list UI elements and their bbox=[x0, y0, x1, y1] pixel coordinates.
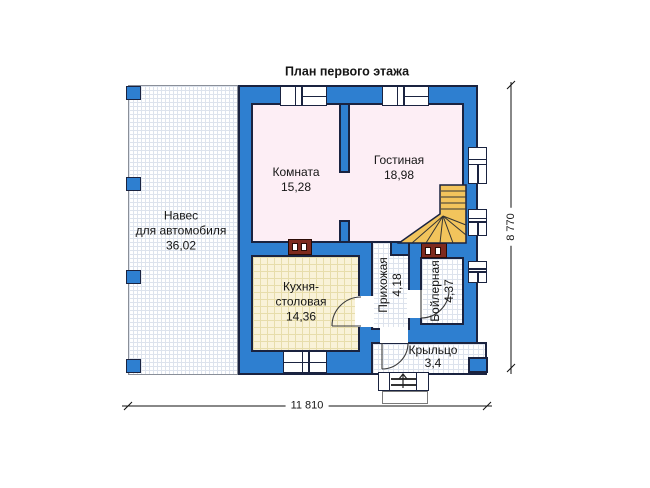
dimension-bottom: 11 810 bbox=[286, 400, 329, 413]
window-symbol bbox=[468, 261, 487, 283]
carport-post bbox=[126, 359, 141, 373]
partition-wall-stub bbox=[339, 220, 350, 243]
label-gostinaya: Гостиная 18,98 bbox=[374, 153, 424, 183]
label-carport: Навес для автомобиля 36,02 bbox=[136, 209, 227, 254]
window-symbol bbox=[382, 86, 429, 106]
carport-post bbox=[126, 177, 141, 191]
entry-steps-stringer bbox=[416, 372, 429, 391]
area-komnata: 15,28 bbox=[273, 180, 320, 195]
chimney-flue bbox=[421, 243, 447, 258]
dimension-right: 8 770 bbox=[504, 208, 518, 246]
area-gostinaya: 18,98 bbox=[374, 168, 424, 183]
label-hallway: Прихожая 4,18 bbox=[376, 257, 404, 313]
window-symbol bbox=[468, 147, 487, 184]
page-title: План первого этажа bbox=[285, 65, 409, 80]
label-porch: Крыльцо 3,4 bbox=[409, 344, 458, 370]
window-symbol bbox=[280, 86, 327, 106]
partition-wall bbox=[339, 103, 350, 173]
label-kitchen: Кухня- столовая 14,36 bbox=[276, 280, 327, 325]
area-kitchen: 14,36 bbox=[276, 310, 327, 325]
floor-plan: План первого этажа Навес для автомобиля … bbox=[0, 0, 650, 488]
area-hallway: 4,18 bbox=[390, 257, 404, 313]
label-boiler: Бойлерная 4,37 bbox=[428, 260, 456, 321]
area-porch: 3,4 bbox=[409, 357, 458, 370]
window-symbol bbox=[468, 209, 487, 236]
carport-post bbox=[126, 270, 141, 284]
hallway-wall-stub bbox=[390, 241, 410, 256]
steps-landing-outline bbox=[382, 391, 428, 404]
area-carport: 36,02 bbox=[136, 239, 227, 254]
chimney-flue bbox=[288, 239, 312, 255]
entry-steps bbox=[389, 372, 418, 391]
area-boiler: 4,37 bbox=[442, 260, 456, 321]
label-komnata: Комната 15,28 bbox=[273, 165, 320, 195]
carport-post bbox=[126, 86, 141, 100]
porch-pier bbox=[468, 357, 488, 373]
window-symbol bbox=[283, 351, 327, 373]
